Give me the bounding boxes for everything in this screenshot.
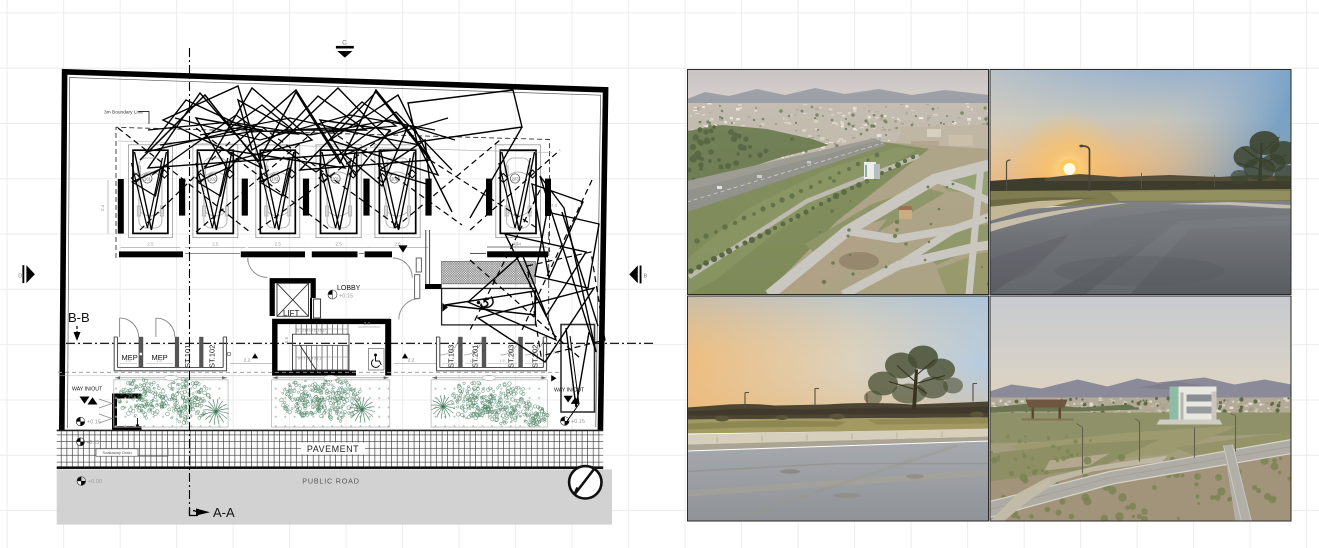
svg-text:2.4: 2.4	[100, 204, 105, 211]
svg-text:LOBBY: LOBBY	[337, 285, 361, 292]
svg-text:B: B	[644, 274, 648, 280]
svg-text:B-B: B-B	[68, 310, 90, 325]
svg-text:2.5: 2.5	[275, 242, 282, 247]
svg-text:+0.15: +0.15	[571, 419, 585, 425]
svg-text:3m Boundary Line: 3m Boundary Line	[104, 110, 143, 116]
svg-text:1.8: 1.8	[499, 358, 505, 363]
svg-text:2.0: 2.0	[364, 321, 371, 327]
svg-text:Soakaway Drain: Soakaway Drain	[102, 450, 131, 455]
svg-text:2.2: 2.2	[244, 358, 251, 364]
svg-text:PUBLIC ROAD: PUBLIC ROAD	[302, 477, 360, 486]
svg-text:1.8: 1.8	[469, 358, 475, 363]
svg-text:101: 101	[144, 176, 152, 181]
svg-text:2.0: 2.0	[553, 350, 560, 356]
svg-text:103: 103	[271, 176, 279, 181]
svg-text:2.5: 2.5	[335, 242, 342, 247]
svg-text:2.0: 2.0	[551, 203, 558, 209]
svg-text:1.8: 1.8	[125, 358, 131, 363]
svg-text:+0.15: +0.15	[339, 294, 353, 300]
svg-text:5.6: 5.6	[284, 336, 289, 343]
svg-text:ST.103: ST.103	[447, 345, 456, 368]
svg-text:ST.102: ST.102	[208, 345, 217, 368]
svg-text:1.1: 1.1	[513, 241, 520, 246]
svg-text:D: D	[18, 274, 22, 280]
svg-text:ST.201: ST.201	[471, 345, 480, 368]
svg-text:PAVEMENT: PAVEMENT	[307, 444, 359, 454]
svg-text:203: 203	[512, 176, 520, 181]
svg-text:+0.00: +0.00	[88, 479, 102, 485]
svg-text:1.8: 1.8	[156, 358, 162, 363]
svg-text:C: C	[342, 40, 347, 47]
svg-text:LIFT: LIFT	[283, 309, 300, 318]
svg-text:9 8 7 6 5 4 3 2 1: 9 8 7 6 5 4 3 2 1	[298, 357, 321, 361]
svg-text:2.2: 2.2	[408, 358, 415, 364]
svg-text:ST.203: ST.203	[507, 345, 516, 368]
svg-text:WAY IN/OUT: WAY IN/OUT	[72, 387, 103, 393]
svg-text:A-A: A-A	[213, 505, 235, 520]
svg-text:+0.15: +0.15	[87, 440, 100, 446]
svg-text:11 12 13 14 15 16 17: 11 12 13 14 15 16 17	[296, 329, 326, 333]
svg-text:2.5: 2.5	[212, 242, 219, 247]
svg-text:ST.202: ST.202	[531, 345, 540, 368]
svg-text:WAY IN/OUT: WAY IN/OUT	[554, 388, 585, 394]
svg-text:ST.101: ST.101	[183, 345, 192, 368]
svg-text:+0.15: +0.15	[87, 420, 101, 426]
svg-text:102: 102	[209, 176, 217, 181]
svg-text:2.5: 2.5	[147, 242, 154, 247]
